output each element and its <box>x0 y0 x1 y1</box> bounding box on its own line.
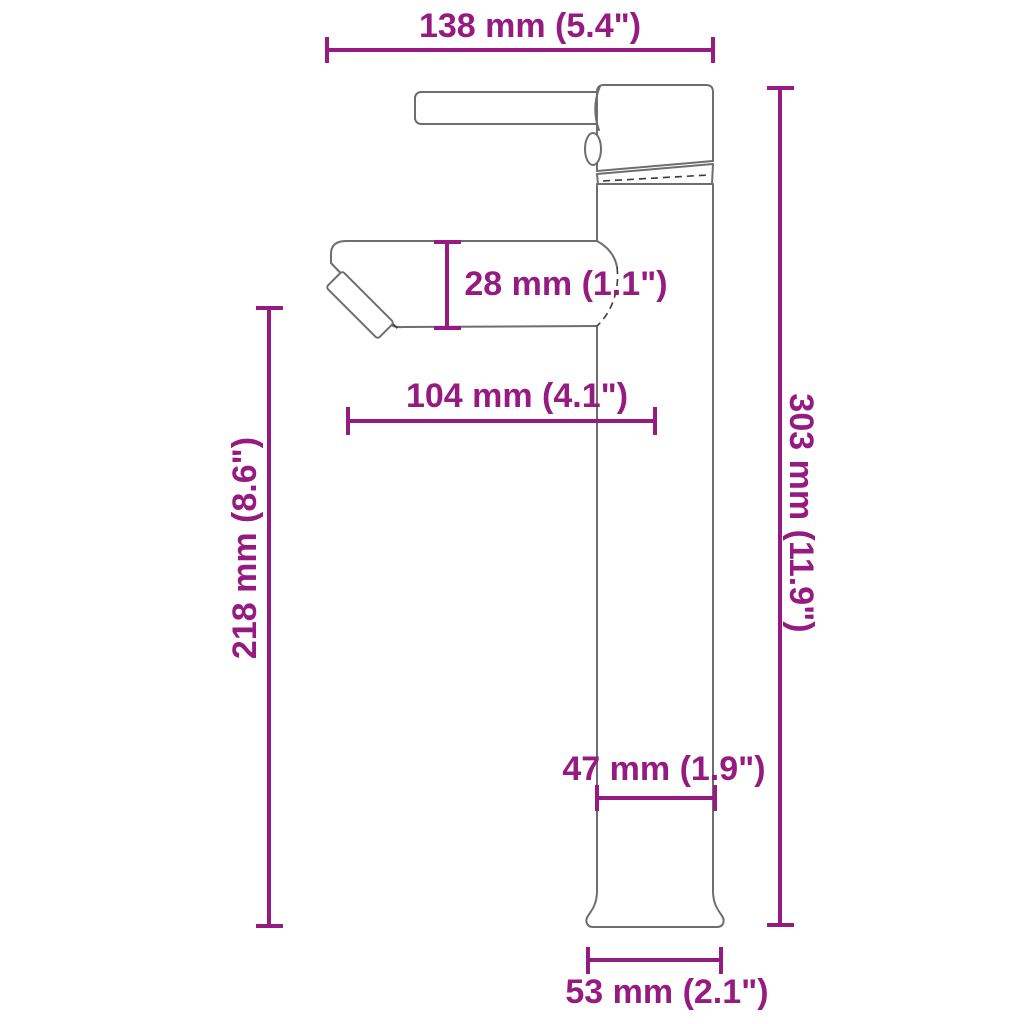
screw-detail <box>585 133 601 165</box>
dim-label-spout-height: 28 mm (1.1") <box>464 267 667 301</box>
dim-label-total-height: 303 mm (11.9") <box>784 393 818 632</box>
handle-lever <box>415 92 603 124</box>
dim-line-base-width <box>588 947 721 974</box>
dim-label-base-width: 53 mm (2.1") <box>565 975 768 1009</box>
dim-label-width-top: 138 mm (5.4") <box>419 9 641 43</box>
head-body <box>597 85 713 171</box>
dim-label-height-to-spout: 218 mm (8.6") <box>228 437 262 659</box>
dim-label-column-width: 47 mm (1.9") <box>562 752 765 786</box>
faucet-drawing <box>0 0 1024 1024</box>
dim-label-spout-reach: 104 mm (4.1") <box>406 379 628 413</box>
faucet-outline <box>326 85 724 927</box>
dimension-diagram: 138 mm (5.4") 28 mm (1.1") 104 mm (4.1")… <box>0 0 1024 1024</box>
